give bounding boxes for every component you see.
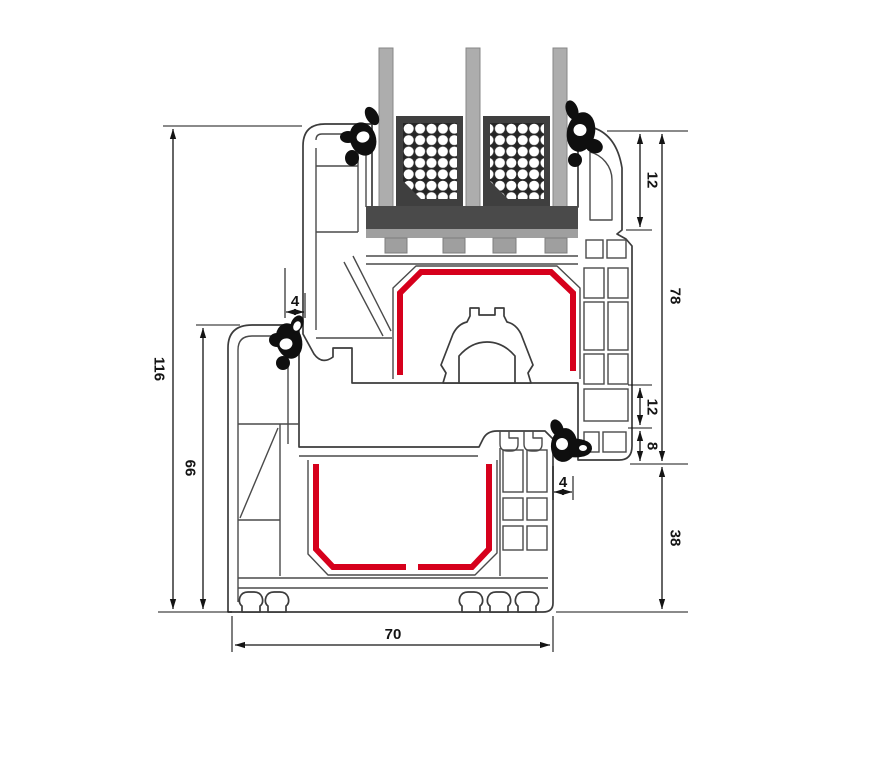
dim-frame-face: 38: [662, 467, 684, 609]
dim-label-8: 8: [644, 442, 661, 450]
dim-overlap: 8: [640, 431, 661, 461]
dim-label-78: 78: [667, 288, 684, 305]
glass-pane-1: [379, 48, 393, 207]
dim-top-face: 12: [640, 134, 661, 227]
dim-total-height: 116: [151, 129, 174, 609]
dim-gap-right: 4: [554, 474, 572, 492]
glazing-bridge: [366, 206, 578, 229]
glazing-bridge-base: [366, 229, 578, 238]
dim-label-12-top: 12: [644, 172, 661, 189]
glazing-unit: [366, 48, 578, 253]
glass-pane-2: [466, 48, 480, 207]
dim-label-4-right: 4: [559, 474, 568, 491]
dim-gap-left: 4: [286, 293, 304, 312]
dim-label-116: 116: [151, 357, 168, 381]
dim-frame-height: 66: [182, 328, 204, 609]
dim-label-38: 38: [667, 530, 684, 547]
dim-sash-height: 78: [662, 134, 684, 461]
window-cross-section-svg: 116 66 4 12 78 12 8 4: [0, 0, 877, 766]
dim-label-12-mid: 12: [644, 399, 661, 416]
spacer-bar-2: [483, 116, 550, 206]
dim-label-66: 66: [182, 460, 199, 477]
spacer-bar-1: [396, 116, 463, 206]
dim-label-70: 70: [385, 626, 402, 643]
glass-pane-3: [553, 48, 567, 207]
technical-drawing-canvas: 116 66 4 12 78 12 8 4: [0, 0, 877, 766]
dim-label-4-left: 4: [291, 293, 300, 310]
dim-depth: 70: [235, 626, 550, 645]
dim-mid-face: 12: [640, 388, 661, 425]
